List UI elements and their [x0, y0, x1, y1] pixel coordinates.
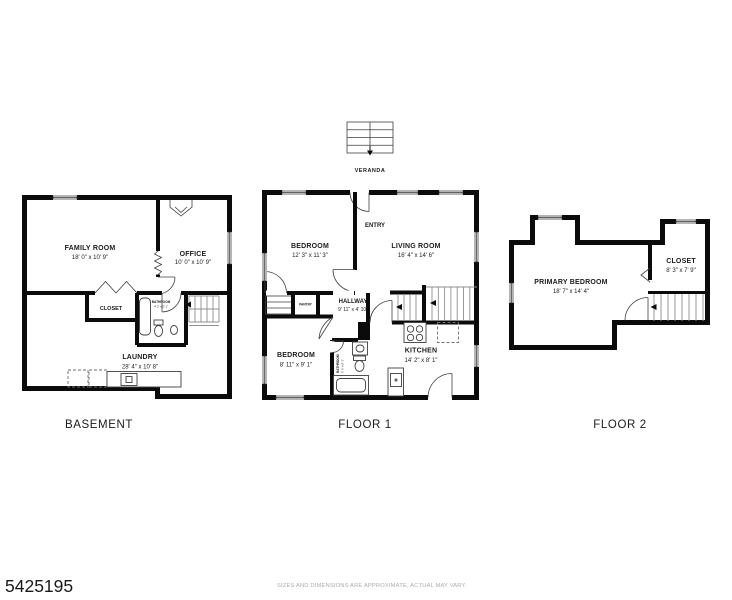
closet-door-arc: [265, 272, 287, 294]
office-name: OFFICE: [180, 251, 207, 258]
office-dims: 10' 0" x 10' 9": [175, 260, 211, 266]
family-room-name: FAMILY ROOM: [65, 245, 116, 252]
second-floor-plan: PRIMARY BEDROOM 18' 7" x 14' 4" CLOSET 8…: [509, 215, 708, 348]
basement-window-top: [53, 195, 77, 200]
floor2-stairs-icon: [651, 294, 704, 321]
bathroom1-dims: 5' 0" x 8' 1": [341, 359, 345, 373]
kitchen-sink-icon: [388, 368, 404, 396]
floor2-closet-name: CLOSET: [666, 258, 696, 265]
stairs-direction-arrow-icon: [396, 304, 402, 310]
laundry-counter-sink-icon: [107, 372, 181, 388]
washer-dryer-icon: [68, 370, 107, 387]
floor-plan-image: VERANDA: [0, 0, 732, 600]
floor1-label: FLOOR 1: [338, 419, 391, 431]
basement-floor-plan: FAMILY ROOM 18' 0" x 10' 9" OFFICE 10' 0…: [24, 195, 232, 397]
vanity-sink-icon: [353, 342, 368, 355]
kitchen-name: KITCHEN: [405, 348, 438, 355]
stove-icon: [404, 323, 426, 343]
listing-id: 5425195: [5, 576, 73, 597]
bedroom2-name: BEDROOM: [277, 352, 315, 359]
floor2-label: FLOOR 2: [593, 419, 646, 431]
laundry-dims: 28' 4" x 10' 8": [122, 365, 158, 371]
hallway-dims: 9' 11" x 4' 10": [338, 307, 368, 313]
bifold-doors-icon: [95, 282, 137, 294]
floor2-closet-dims: 8' 3" x 7' 9": [666, 268, 696, 274]
basement-bathroom-name: BATHROOM: [152, 300, 171, 304]
entry-label: ENTRY: [365, 223, 385, 229]
fireplace-icon: [170, 200, 192, 216]
family-room-dims: 18' 0" x 10' 9": [72, 255, 108, 261]
primary-bedroom-name: PRIMARY BEDROOM: [534, 279, 607, 286]
basement-stairs-icon: [185, 296, 219, 326]
disclaimer-text: SIZES AND DIMENSIONS ARE APPROXIMATE, AC…: [277, 583, 467, 589]
bedroom1-name: BEDROOM: [291, 243, 329, 250]
bedroom-stair-door-arc: [625, 298, 648, 321]
basement-label: BASEMENT: [65, 419, 133, 431]
kitchen-hall-door-arc: [370, 301, 392, 323]
refrigerator-icon: [438, 323, 459, 343]
kitchen-dims: 14' 2" x 8' 1": [405, 358, 438, 364]
bathtub-icon: [140, 298, 151, 335]
bedroom1-door-arc: [333, 270, 355, 292]
stairs-direction-arrow-icon: [651, 304, 657, 310]
floor1-stairs-icon: [390, 285, 477, 323]
closet-shelves-icon: [266, 296, 293, 314]
veranda-deck: VERANDA: [347, 122, 393, 174]
floor-plan-sheet: VERANDA: [0, 0, 732, 600]
basement-closet-name: CLOSET: [100, 306, 123, 312]
laundry-name: LAUNDRY: [122, 354, 157, 361]
living-room-dims: 16' 4" x 14' 6": [398, 253, 434, 259]
living-room-name: LIVING ROOM: [391, 243, 440, 250]
toilet-icon: [154, 320, 163, 337]
bedroom1-dims: 12' 3" x 11' 3": [292, 253, 328, 259]
bathroom1-name: BATHROOM: [336, 354, 340, 373]
primary-bedroom-dims: 18' 7" x 14' 4": [553, 289, 589, 295]
toilet-icon: [354, 356, 366, 372]
entry-door-arc: [350, 190, 369, 212]
veranda-label: VERANDA: [355, 168, 386, 174]
sink-icon: [171, 326, 178, 335]
bedroom2-dims: 8' 11" x 9' 1": [280, 363, 312, 369]
basement-bathroom-dims: 4' 2" x 5' 1": [154, 305, 168, 309]
first-floor-plan: BATHROOM 5' 0" x 8' 1": [262, 190, 479, 401]
pantry-label: PANTRY: [299, 303, 313, 307]
kitchen-door-arc: [428, 374, 452, 401]
bedroom2-door-arc: [319, 317, 333, 339]
stairs-direction-arrow-icon: [430, 300, 436, 306]
basement-window-right: [227, 232, 232, 264]
veranda-down-arrow-icon: [367, 146, 373, 156]
bathtub-icon: [334, 376, 369, 396]
hallway-name: HALLWAY: [339, 299, 368, 305]
